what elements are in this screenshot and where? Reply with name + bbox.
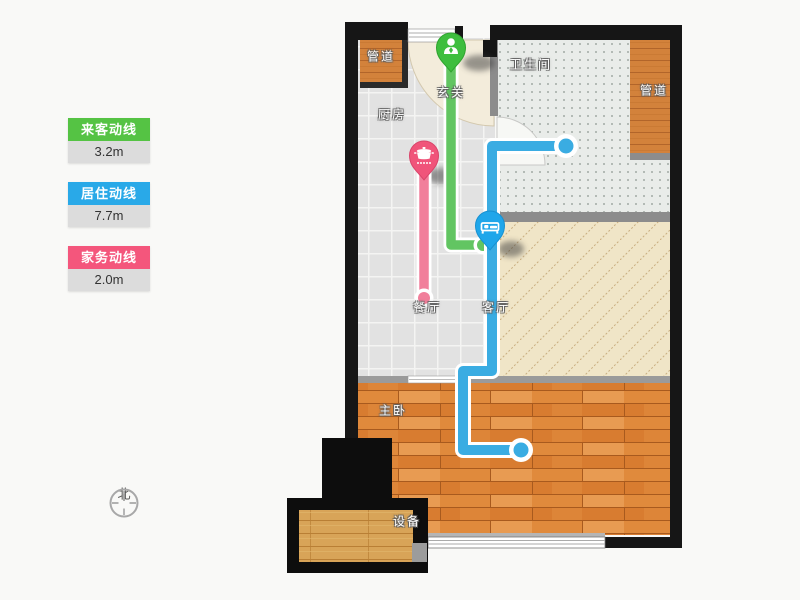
legend-item-resident[interactable]: 居住动线 7.7m [68,182,150,227]
room-label-bathroom: 卫生间 [510,56,552,73]
legend-resident-label[interactable]: 居住动线 [68,182,150,205]
route-legend: 来客动线 3.2m 居住动线 7.7m 家务动线 2.0m [68,118,150,310]
bedroom-window [428,537,605,548]
legend-housework-label[interactable]: 家务动线 [68,246,150,269]
legend-housework-value: 2.0m [68,269,150,291]
legend-visitor-label[interactable]: 来客动线 [68,118,150,141]
room-label-kitchen: 厨房 [378,106,406,123]
legend-item-housework[interactable]: 家务动线 2.0m [68,246,150,291]
legend-item-visitor[interactable]: 来客动线 3.2m [68,118,150,163]
room-label-living: 客厅 [482,299,510,316]
room-label-equipment: 设备 [393,513,421,530]
room-label-pipe-left: 管道 [367,48,395,65]
compass-icon [107,480,141,520]
room-label-pipe-right: 管道 [640,82,668,99]
floorplan-viewer: 管道 玄关 厨房 卫生间 管道 餐厅 客厅 主卧 设备 来客动线 3.2m 居住… [0,0,800,600]
housework-route-line [415,172,434,308]
room-label-entrance: 玄关 [437,84,465,101]
legend-resident-value: 7.7m [68,205,150,227]
legend-visitor-value: 3.2m [68,141,150,163]
room-label-dining: 餐厅 [413,299,441,316]
room-label-bedroom: 主卧 [379,402,407,419]
